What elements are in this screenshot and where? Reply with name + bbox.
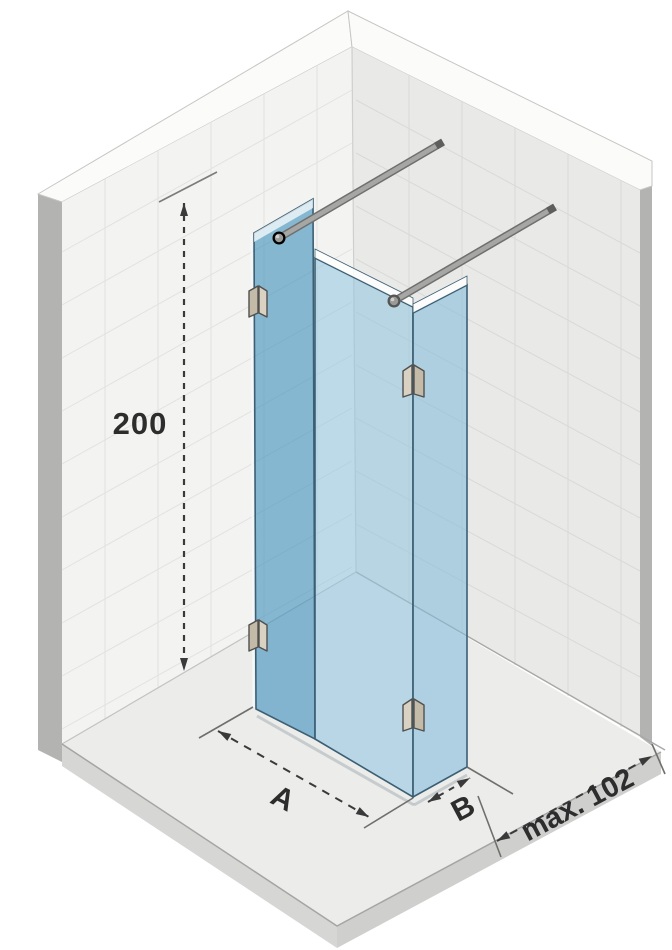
right-wall-outer-edge <box>640 183 652 746</box>
clamp-tall-panel-upper <box>249 286 267 317</box>
isometric-scene: 200 <box>0 0 672 950</box>
height-label: 200 <box>113 406 168 441</box>
clamp-corner-upper <box>403 365 424 397</box>
left-wall-outer-edge <box>38 194 62 762</box>
support-bar-rear-wall-anchor <box>436 142 443 146</box>
clamp-tall-panel-lower <box>249 620 267 651</box>
shower-enclosure-diagram: 200 <box>0 0 672 950</box>
support-bar-front-glass-fitting <box>388 295 401 308</box>
support-bar-rear-glass-fitting <box>273 232 286 245</box>
glass-tall-panel <box>254 199 315 739</box>
glass-front-panel <box>315 258 413 797</box>
support-bar-front-wall-anchor <box>548 207 555 211</box>
clamp-corner-lower <box>403 699 424 731</box>
